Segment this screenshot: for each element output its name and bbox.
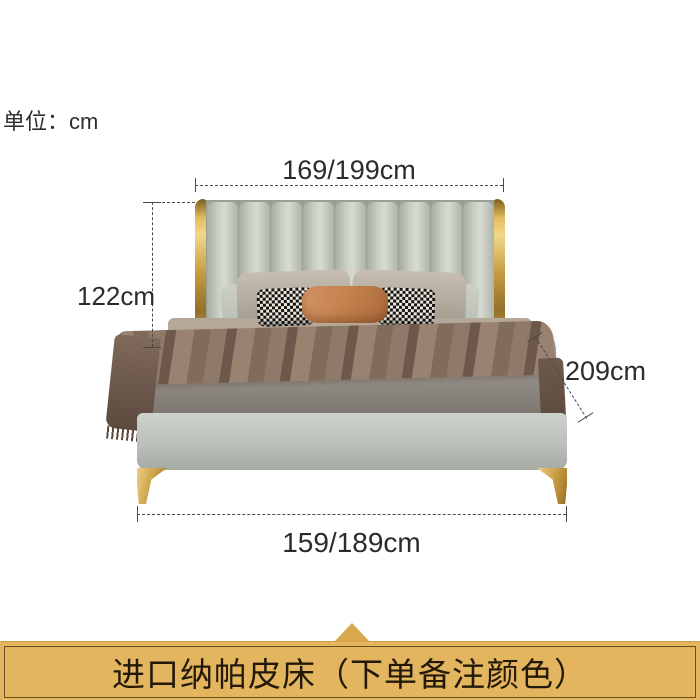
blanket — [115, 321, 554, 386]
bed-base — [137, 413, 567, 470]
dim-bottom-label: 159/189cm — [137, 527, 566, 559]
dim-right-label: 209cm — [565, 356, 646, 387]
dim-left-tick-top — [143, 202, 161, 203]
banner-pointer — [334, 623, 370, 642]
banner-inner-border: 进口纳帕皮床（下单备注颜色） — [4, 646, 696, 698]
banner: 进口纳帕皮床（下单备注颜色） — [0, 641, 700, 700]
headboard-gold-trim-right — [494, 199, 505, 335]
dim-top-label: 169/199cm — [195, 155, 503, 186]
dim-bottom-tick-right — [566, 506, 567, 522]
dim-bottom-line — [137, 514, 566, 515]
bed-leg-right — [537, 468, 567, 504]
headboard-gold-trim-left — [195, 199, 206, 335]
dim-left-label: 122cm — [77, 281, 155, 312]
dim-right-tick-bottom — [578, 412, 594, 422]
dim-left-line — [152, 202, 153, 347]
product-dimension-diagram: 单位：cm 169/199cm 122cm 209cm — [0, 0, 700, 700]
dim-left-tick-bottom — [143, 347, 161, 348]
dim-bottom-tick-left — [137, 506, 138, 522]
dim-top-tick-right — [503, 178, 504, 192]
banner-text: 进口纳帕皮床（下单备注颜色） — [112, 648, 588, 696]
bed-leg-left — [137, 468, 167, 504]
pillow-lumbar-caramel — [302, 286, 388, 323]
unit-label: 单位：cm — [3, 104, 98, 136]
